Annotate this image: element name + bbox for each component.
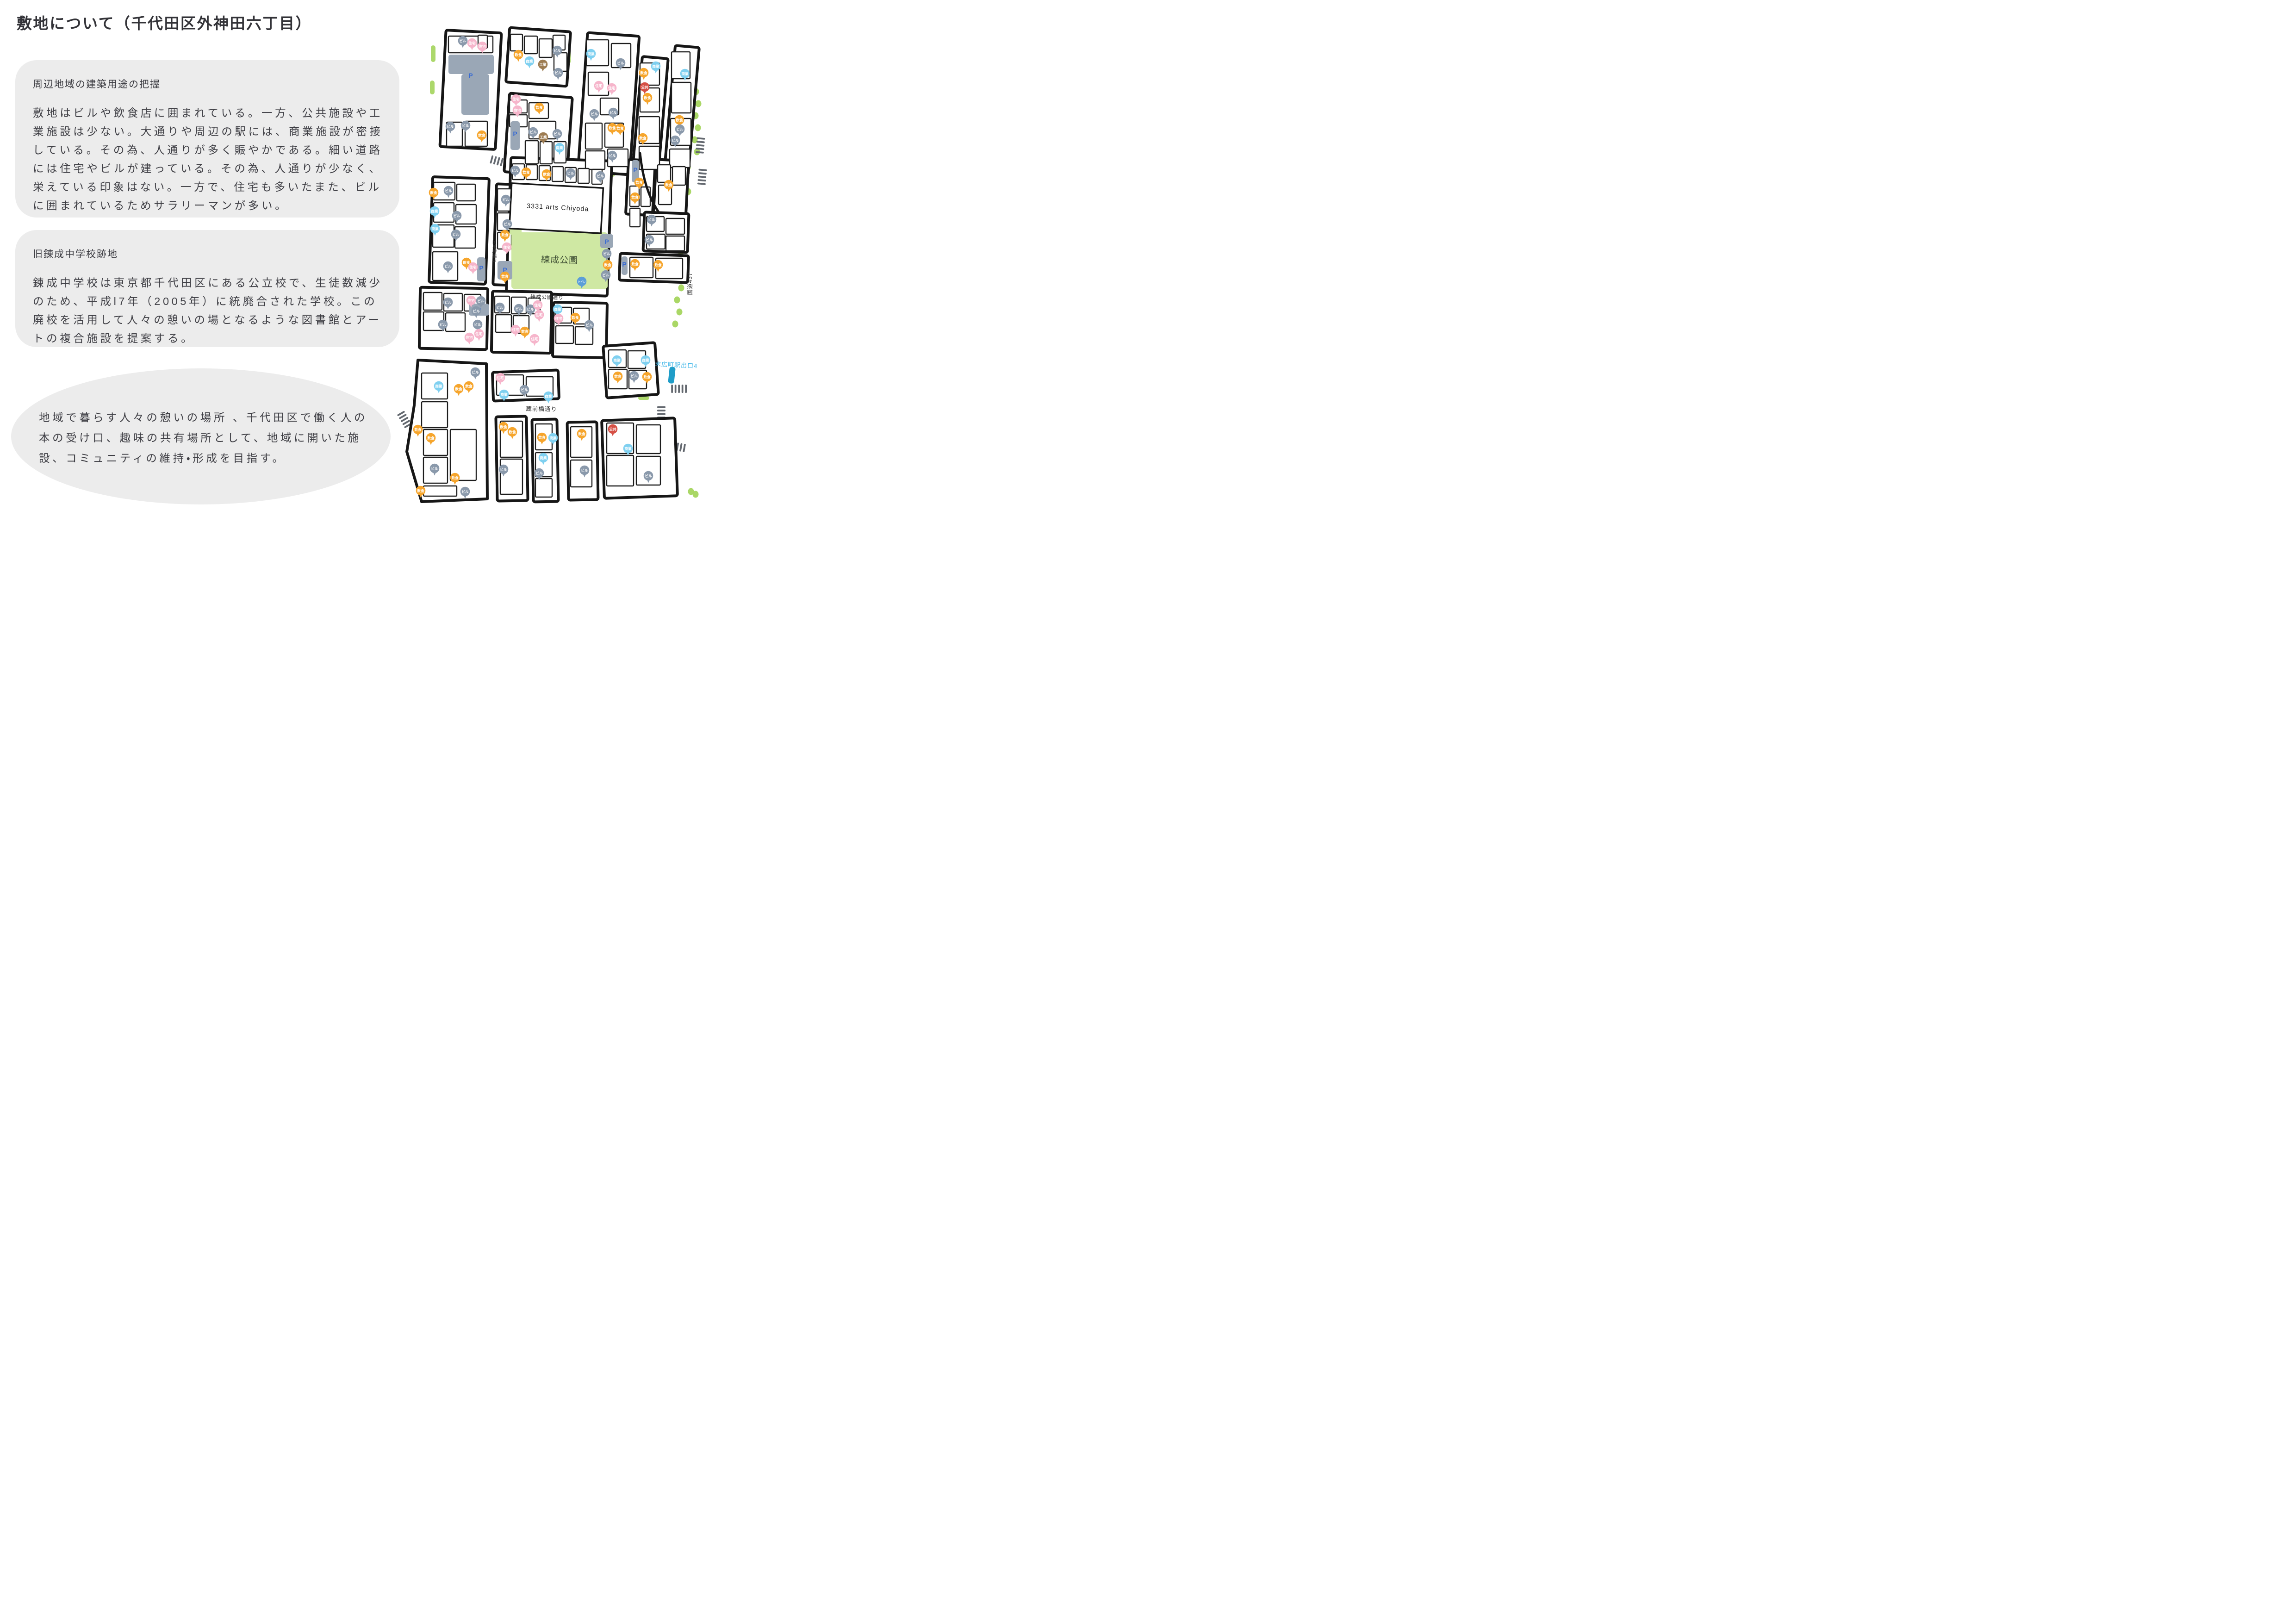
tree-dot xyxy=(672,321,678,328)
svg-text:商業: 商業 xyxy=(624,446,632,451)
building-footprint xyxy=(585,151,605,169)
svg-text:飲食: 飲食 xyxy=(427,436,435,440)
svg-text:飲食: 飲食 xyxy=(635,180,643,185)
svg-text:飲食: 飲食 xyxy=(643,95,651,100)
crosswalk xyxy=(697,169,707,185)
parking-letter: P xyxy=(479,264,483,272)
note-school-site: 旧錬成中学校跡地 錬成中学校は東京都千代田区にある公立校で、生徒数減少のため、平… xyxy=(15,230,399,347)
svg-text:工業: 工業 xyxy=(540,135,547,139)
note-building-use-heading: 周辺地域の建築用途の把握 xyxy=(33,77,385,91)
crosswalk xyxy=(671,385,687,393)
svg-text:ビル: ビル xyxy=(554,48,561,53)
svg-text:商業: 商業 xyxy=(540,455,547,460)
svg-text:飲食: 飲食 xyxy=(508,429,516,434)
svg-text:飲食: 飲食 xyxy=(675,118,683,122)
building-footprint xyxy=(457,184,475,201)
parking-letter: P xyxy=(468,72,473,79)
svg-text:飲食: 飲食 xyxy=(465,384,473,388)
svg-text:飲食: 飲食 xyxy=(462,260,470,265)
tree-dot xyxy=(677,309,683,316)
building-footprint xyxy=(666,218,684,234)
svg-text:ビル: ビル xyxy=(527,307,534,311)
building-footprint xyxy=(496,315,511,332)
svg-text:飲食: 飲食 xyxy=(603,262,611,267)
svg-text:飲食: 飲食 xyxy=(578,431,585,436)
svg-text:ビル: ビル xyxy=(500,467,507,472)
svg-text:商業: 商業 xyxy=(435,384,442,388)
svg-text:公共: 公共 xyxy=(641,85,648,89)
marker-com: 商業 xyxy=(544,392,554,404)
shrub xyxy=(430,81,435,94)
svg-text:飲食: 飲食 xyxy=(631,195,639,199)
site-map: PPPPPPPP3331 arts Chiyoda練成公園練成公園通り蔵前橋通り… xyxy=(391,7,715,505)
svg-text:飲食: 飲食 xyxy=(514,52,522,57)
svg-text:飲食: 飲食 xyxy=(535,105,543,110)
svg-text:飲食: 飲食 xyxy=(499,424,507,429)
svg-text:商業: 商業 xyxy=(652,64,659,68)
svg-text:飲食: 飲食 xyxy=(608,125,616,130)
svg-text:飲食: 飲食 xyxy=(571,315,579,320)
building-footprint xyxy=(556,326,573,343)
building-footprint xyxy=(552,167,563,181)
svg-text:ビル: ビル xyxy=(474,322,481,327)
building-footprint xyxy=(607,455,634,486)
svg-text:商業: 商業 xyxy=(431,209,438,213)
parking-area xyxy=(461,74,489,115)
svg-text:商業: 商業 xyxy=(613,358,621,362)
building-footprint xyxy=(539,39,552,57)
building-footprint xyxy=(578,168,589,183)
svg-text:ビル: ビル xyxy=(603,251,610,256)
building-footprint xyxy=(658,165,671,182)
building-footprint xyxy=(672,167,685,185)
svg-text:飲食: 飲食 xyxy=(478,133,485,137)
svg-text:飲食: 飲食 xyxy=(501,232,509,237)
svg-text:飲食: 飲食 xyxy=(640,70,647,75)
svg-text:ビル: ビル xyxy=(473,309,480,313)
tree-dot xyxy=(696,100,702,107)
svg-text:ビル: ビル xyxy=(515,306,522,311)
slide: { "title": "敷地について（千代田区外神田六丁目）", "notes"… xyxy=(0,0,715,506)
svg-text:ビル: ビル xyxy=(453,213,460,218)
building-footprint xyxy=(510,34,522,51)
svg-text:商業: 商業 xyxy=(500,392,508,397)
svg-text:商業: 商業 xyxy=(545,394,552,398)
building-footprint xyxy=(670,149,690,168)
svg-text:ビル: ビル xyxy=(591,112,598,116)
svg-text:ビル: ビル xyxy=(459,38,466,43)
building-footprint xyxy=(422,402,448,428)
svg-text:飲食: 飲食 xyxy=(451,475,459,480)
svg-text:商業: 商業 xyxy=(642,358,649,362)
svg-text:ビル: ビル xyxy=(581,468,588,473)
building-footprint xyxy=(666,236,684,251)
svg-text:住宅: 住宅 xyxy=(467,298,475,303)
svg-text:住宅: 住宅 xyxy=(534,303,541,307)
svg-text:住宅: 住宅 xyxy=(496,375,504,380)
svg-text:ビル: ビル xyxy=(676,127,684,131)
svg-text:住宅: 住宅 xyxy=(511,327,519,332)
svg-text:飲食: 飲食 xyxy=(501,274,509,279)
svg-text:公共: 公共 xyxy=(609,427,616,431)
svg-text:ビル: ビル xyxy=(648,217,655,222)
svg-text:住宅: 住宅 xyxy=(530,336,538,341)
svg-text:商業: 商業 xyxy=(587,51,595,56)
svg-text:ビル: ビル xyxy=(447,124,454,129)
svg-text:飲食: 飲食 xyxy=(654,262,662,267)
svg-text:ビル: ビル xyxy=(617,61,624,65)
map-label: 末広町駅出口4 xyxy=(655,361,698,370)
svg-text:ビル: ビル xyxy=(496,305,504,310)
svg-text:住宅: 住宅 xyxy=(469,265,477,269)
parking-area xyxy=(448,55,494,74)
svg-text:ビル: ビル xyxy=(567,171,574,175)
building-footprint xyxy=(525,141,538,164)
svg-text:商業: 商業 xyxy=(549,436,557,440)
svg-text:ビル: ビル xyxy=(472,370,479,374)
svg-text:ビル: ビル xyxy=(672,138,679,143)
svg-text:住宅: 住宅 xyxy=(475,331,483,336)
svg-text:商業: 商業 xyxy=(556,145,563,150)
svg-text:ビル: ビル xyxy=(610,110,617,115)
parking-letter: P xyxy=(604,238,609,245)
svg-text:ビル: ビル xyxy=(477,299,485,303)
map-label: 国道437 xyxy=(687,272,693,295)
svg-text:ビル: ビル xyxy=(602,273,610,277)
note-school-site-heading: 旧錬成中学校跡地 xyxy=(33,247,385,261)
building-footprint xyxy=(423,429,448,455)
svg-text:飲食: 飲食 xyxy=(414,427,422,432)
svg-text:ビル: ビル xyxy=(444,300,452,305)
svg-text:住宅: 住宅 xyxy=(608,86,616,90)
svg-text:ビル: ビル xyxy=(511,168,519,173)
svg-text:住宅: 住宅 xyxy=(554,316,562,321)
svg-text:トイレ: トイレ xyxy=(578,280,586,284)
shrub xyxy=(431,45,435,62)
svg-text:住宅: 住宅 xyxy=(478,44,486,49)
svg-text:ビル: ビル xyxy=(431,466,438,471)
building-footprint xyxy=(446,313,465,331)
svg-text:住宅: 住宅 xyxy=(513,108,521,112)
tree-dot xyxy=(693,491,699,498)
svg-text:飲食: 飲食 xyxy=(522,170,530,174)
svg-text:ビル: ビル xyxy=(504,222,511,226)
svg-text:ビル: ビル xyxy=(502,197,510,202)
tree-dot xyxy=(674,297,680,304)
svg-text:ビル: ビル xyxy=(529,130,537,134)
svg-text:ビル: ビル xyxy=(585,323,593,327)
svg-text:飲食: 飲食 xyxy=(639,136,647,140)
svg-text:ビル: ビル xyxy=(452,232,460,236)
building-footprint xyxy=(524,36,537,54)
tree-dot xyxy=(678,285,684,292)
building-footprint xyxy=(535,479,552,497)
note-concept: 地域で暮らす人々の憩いの場所 、千代田区で働く人の本の受け口、趣味の共有場所とし… xyxy=(11,368,391,504)
note-concept-body: 地域で暮らす人々の憩いの場所 、千代田区で働く人の本の受け口、趣味の共有場所とし… xyxy=(39,407,371,468)
note-building-use: 周辺地域の建築用途の把握 敷地はビルや飲食店に囲まれている。一方、公共施設や工業… xyxy=(15,60,399,218)
svg-text:ビル: ビル xyxy=(462,123,469,128)
svg-text:工業: 工業 xyxy=(539,62,547,67)
svg-text:飲食: 飲食 xyxy=(616,126,624,131)
svg-text:飲食: 飲食 xyxy=(631,261,639,266)
parking-letter: P xyxy=(622,261,626,268)
svg-text:ビル: ビル xyxy=(609,153,616,158)
svg-text:商業: 商業 xyxy=(554,307,561,311)
building-footprint xyxy=(672,82,691,113)
building-footprint xyxy=(585,123,602,149)
svg-text:住宅: 住宅 xyxy=(468,41,476,45)
map-label: 練成公園 xyxy=(541,255,578,265)
note-school-site-body: 錬成中学校は東京都千代田区にある公立校で、生徒数減少のため、平成l7年（2005… xyxy=(33,274,385,348)
svg-text:飲食: 飲食 xyxy=(454,386,462,391)
svg-text:住宅: 住宅 xyxy=(465,335,473,340)
site-map-canvas: PPPPPPPP3331 arts Chiyoda練成公園練成公園通り蔵前橋通り… xyxy=(391,7,715,505)
station-exit-bar xyxy=(668,367,676,384)
svg-text:住宅: 住宅 xyxy=(535,312,543,317)
map-label: 五軒町通り xyxy=(492,240,497,263)
building-footprint xyxy=(450,429,476,480)
svg-text:飲食: 飲食 xyxy=(643,374,651,379)
building-footprint xyxy=(423,486,457,496)
svg-text:飲食: 飲食 xyxy=(521,329,529,334)
svg-text:ビル: ビル xyxy=(554,131,561,136)
svg-text:ビル: ビル xyxy=(445,188,452,193)
svg-text:ビル: ビル xyxy=(439,322,447,327)
svg-text:商業: 商業 xyxy=(431,226,439,231)
svg-text:飲食: 飲食 xyxy=(429,190,437,195)
svg-text:飲食: 飲食 xyxy=(614,374,622,379)
svg-text:飲食: 飲食 xyxy=(538,435,546,440)
svg-text:飲食: 飲食 xyxy=(665,182,672,187)
svg-text:住宅: 住宅 xyxy=(595,83,603,88)
page-title: 敷地について（千代田区外神田六丁目） xyxy=(17,11,312,33)
svg-text:飲食: 飲食 xyxy=(417,488,424,493)
svg-text:ビル: ビル xyxy=(630,373,638,378)
parking-letter: P xyxy=(513,130,517,137)
building-footprint xyxy=(630,208,640,227)
svg-text:飲食: 飲食 xyxy=(542,172,550,176)
svg-text:ビル: ビル xyxy=(597,174,604,178)
svg-text:ビル: ビル xyxy=(521,387,528,392)
parking-letter: P xyxy=(633,166,637,174)
crosswalk xyxy=(490,155,504,166)
svg-text:ビル: ビル xyxy=(645,473,652,478)
svg-text:ビル: ビル xyxy=(461,489,469,494)
svg-text:ビル: ビル xyxy=(535,471,543,475)
note-building-use-body: 敷地はビルや飲食店に囲まれている。一方、公共施設や工業施設は少ない。大通りや周辺… xyxy=(33,104,385,215)
building-footprint xyxy=(500,459,522,494)
map-label: 蔵前橋通り xyxy=(526,405,557,412)
building-footprint xyxy=(423,292,442,310)
svg-text:ビル: ビル xyxy=(444,264,452,268)
svg-text:ビル: ビル xyxy=(554,70,562,75)
svg-text:住宅: 住宅 xyxy=(503,245,510,249)
tree-dot xyxy=(695,124,701,131)
svg-text:住宅: 住宅 xyxy=(512,97,520,101)
svg-text:ビル: ビル xyxy=(646,237,653,242)
building-footprint xyxy=(636,425,660,454)
svg-text:商業: 商業 xyxy=(526,59,533,63)
building-footprint xyxy=(540,142,552,164)
svg-text:商業: 商業 xyxy=(681,71,689,76)
